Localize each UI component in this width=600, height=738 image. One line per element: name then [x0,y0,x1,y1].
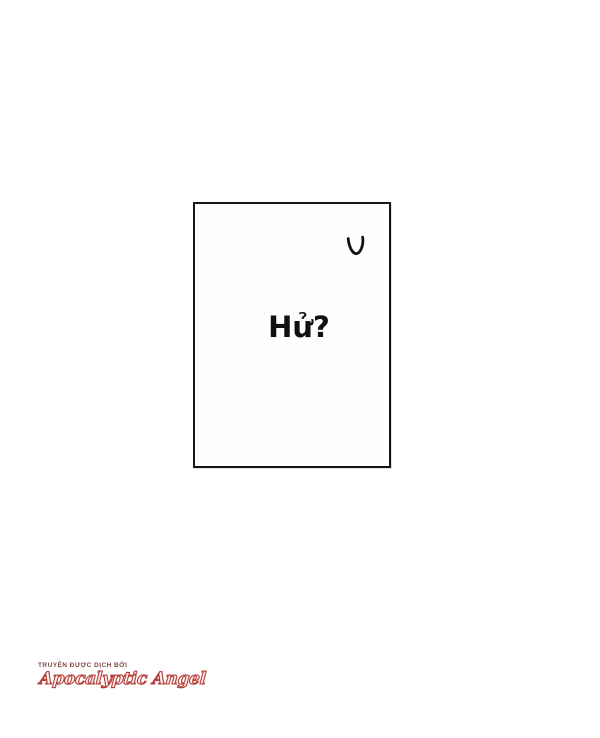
v-doodle-icon [345,234,367,259]
comic-panel: Hử? [193,202,391,468]
translator-watermark: TRUYỆN ĐƯỢC DỊCH BỞI Apocalyptic Angel [38,663,205,688]
watermark-group-name: Apocalyptic Angel [39,671,206,688]
comic-page: Hử? TRUYỆN ĐƯỢC DỊCH BỞI Apocalyptic Ang… [0,0,600,738]
dialogue-text: Hử? [195,310,389,345]
